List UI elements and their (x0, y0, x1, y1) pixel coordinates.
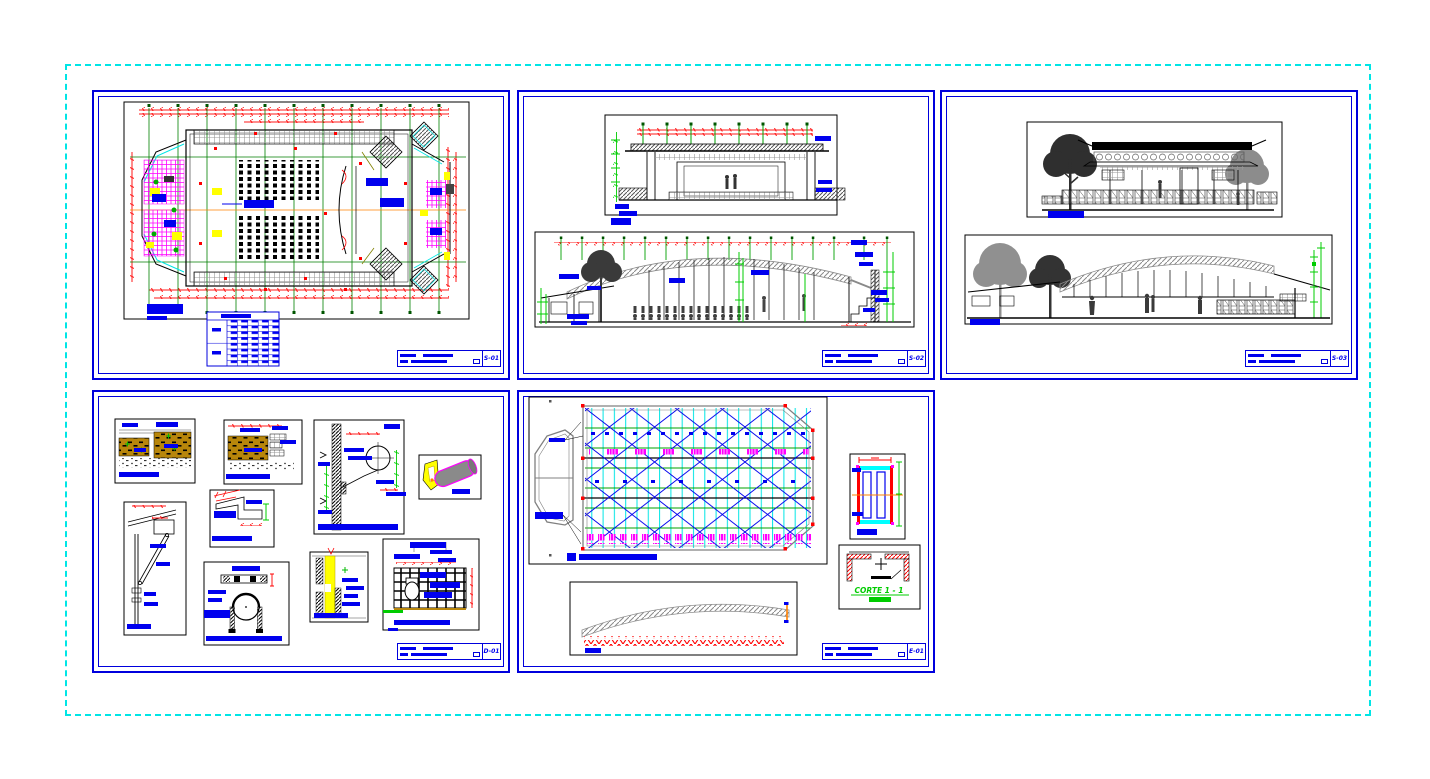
sheet-floor-plan: S-01 (92, 90, 510, 380)
sheet-elevations: S-03 (940, 90, 1358, 380)
title-block: S-01 (397, 350, 501, 367)
drawing-canvas: S-01 (0, 0, 1430, 779)
sheet-code: E-01 (909, 648, 924, 655)
sections-art (519, 92, 933, 378)
title-block-fields (823, 644, 908, 659)
floor-plan-art (94, 92, 508, 378)
front-elevation-box (1027, 122, 1282, 218)
title-block-fields (398, 644, 483, 659)
sheet-roof-structure: CORTE 1 - 1 E-01 (517, 390, 935, 673)
sheet-code: D-01 (484, 648, 500, 655)
title-block-fields (1246, 351, 1331, 366)
finish-schedule-table (207, 312, 279, 366)
details-art (94, 392, 508, 671)
detail-corte: CORTE 1 - 1 (839, 545, 920, 609)
elevations-art (942, 92, 1356, 378)
detail-truss-section (850, 454, 905, 539)
detail-z-flashing (210, 490, 274, 547)
title-block-fields (398, 351, 483, 366)
title-block: S-02 (822, 350, 926, 367)
sheet-sections: S-02 (517, 90, 935, 380)
corte-label: CORTE 1 - 1 (855, 586, 904, 595)
title-block: S-03 (1245, 350, 1349, 367)
detail-canopy-strut (124, 502, 186, 635)
detail-wall-pipe (314, 420, 406, 534)
title-block: E-01 (822, 643, 926, 660)
sheet-code: S-03 (1332, 355, 1347, 362)
title-block-fields (823, 351, 908, 366)
roof-structure-art: CORTE 1 - 1 (519, 392, 933, 671)
title-block: D-01 (397, 643, 501, 660)
sheet-details: D-01 (92, 390, 510, 673)
cross-section-box (605, 115, 845, 225)
sheet-code: S-01 (484, 355, 499, 362)
side-elevation-box (965, 235, 1332, 325)
sheet-code: S-02 (909, 355, 924, 362)
detail-gutter-isometric (419, 455, 481, 499)
detail-lattice-wc (383, 539, 479, 631)
roof-framing-plan (529, 397, 827, 564)
truss-elevation-box (570, 582, 797, 655)
detail-foundation-1 (115, 419, 195, 483)
long-section-box (535, 232, 914, 327)
detail-foundation-2 (224, 420, 302, 484)
detail-wall-joint (310, 548, 368, 622)
detail-pipe-clamp (204, 562, 289, 645)
